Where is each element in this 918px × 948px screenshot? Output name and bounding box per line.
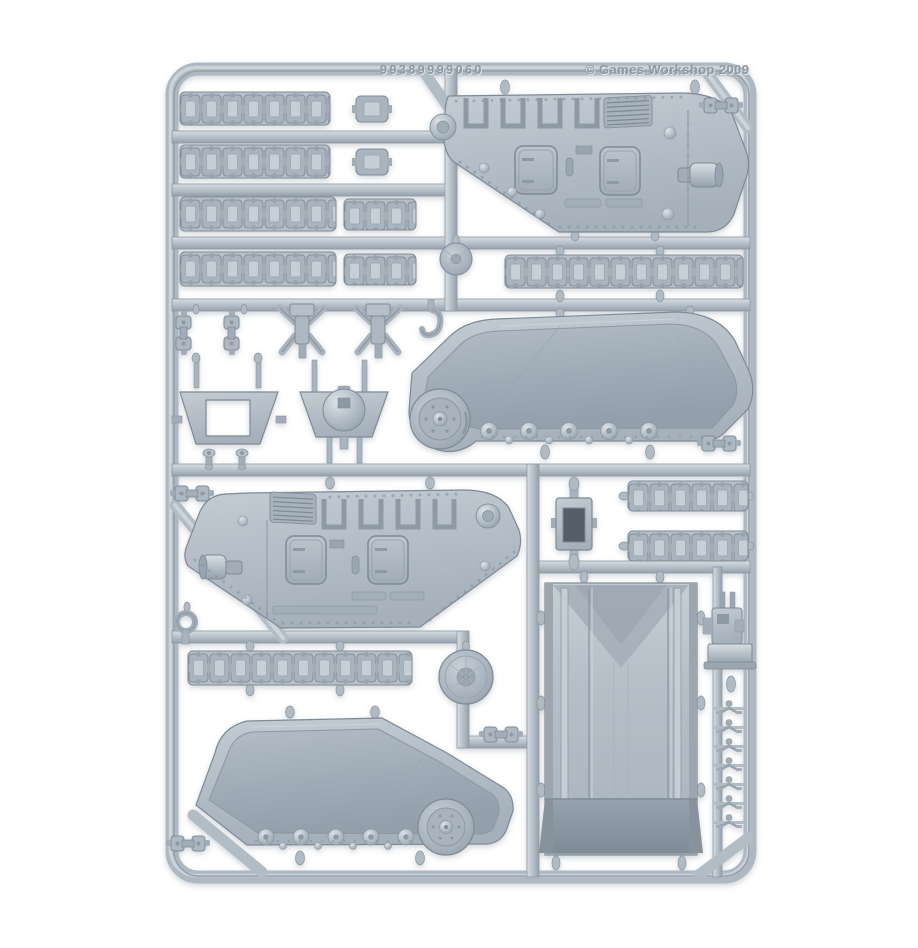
hull-door [368, 536, 408, 584]
ramp-ridge [674, 588, 681, 800]
hinge-bracket-2 [224, 311, 239, 355]
hinge-bracket-4 [166, 836, 210, 851]
louver-vent [604, 95, 652, 128]
drive-sprocket-housing [418, 799, 474, 855]
hull-door [286, 536, 326, 584]
track-strip-6 [344, 254, 416, 285]
runner-h2 [172, 184, 457, 196]
end-cap-1 [203, 449, 215, 470]
vision-block [551, 477, 597, 570]
runner-h4 [172, 299, 750, 311]
hull-side-panel-right [430, 93, 749, 232]
recessed-face [424, 324, 737, 429]
runner-v2 [527, 464, 539, 877]
end-cap-2 [236, 449, 248, 470]
ramp-ridge [561, 588, 568, 800]
hinge-bracket-3 [170, 486, 214, 501]
lower-hull-panel-right [409, 312, 753, 451]
svg-text:99389999060: 99389999060 [380, 63, 484, 77]
embossed-copyright: © Games Workshop 2009 © Games Workshop 2… [585, 62, 750, 78]
runner-h5 [172, 464, 750, 476]
mudguard-frame [172, 392, 286, 444]
track-strip-1 [180, 92, 330, 125]
road-wheel-small [440, 243, 472, 275]
track-strip-9 [628, 481, 748, 511]
track-strip-7 [505, 255, 743, 288]
drive-sprocket-housing [410, 389, 470, 449]
suspension-mount-2 [356, 304, 400, 358]
track-strip-10 [628, 531, 748, 561]
suspension-mount-1 [280, 304, 324, 358]
domed-hatch [300, 386, 388, 449]
vision-slit [352, 556, 359, 574]
louver-vent [270, 492, 316, 524]
single-track-link-1 [352, 96, 392, 122]
track-strip-4 [344, 199, 416, 230]
hull-side-panel-left [185, 490, 521, 628]
svg-text:© Games Workshop 2009: © Games Workshop 2009 [585, 62, 749, 77]
ramp-bottom-flap [539, 799, 703, 853]
runner-h1 [172, 131, 457, 143]
runner-h7 [172, 631, 462, 643]
track-strip-5 [180, 252, 336, 286]
hull-door [515, 146, 557, 194]
track-strip-3 [180, 197, 336, 231]
sprue: 99389999060 99389999060 © Games Workshop… [166, 62, 756, 877]
hinge-bracket-6 [697, 436, 741, 451]
assault-ramp-door [539, 583, 703, 855]
hull-door [600, 147, 640, 195]
sprue-photo: 99389999060 99389999060 © Games Workshop… [0, 0, 918, 948]
vision-slit [566, 158, 573, 176]
embossed-product-code: 99389999060 99389999060 [380, 63, 485, 78]
sprue-illustration: 99389999060 99389999060 © Games Workshop… [0, 0, 918, 948]
track-strip-8 [188, 651, 412, 685]
track-strip-2 [180, 145, 330, 178]
road-wheel-large [439, 650, 493, 704]
single-track-link-2 [352, 149, 392, 175]
